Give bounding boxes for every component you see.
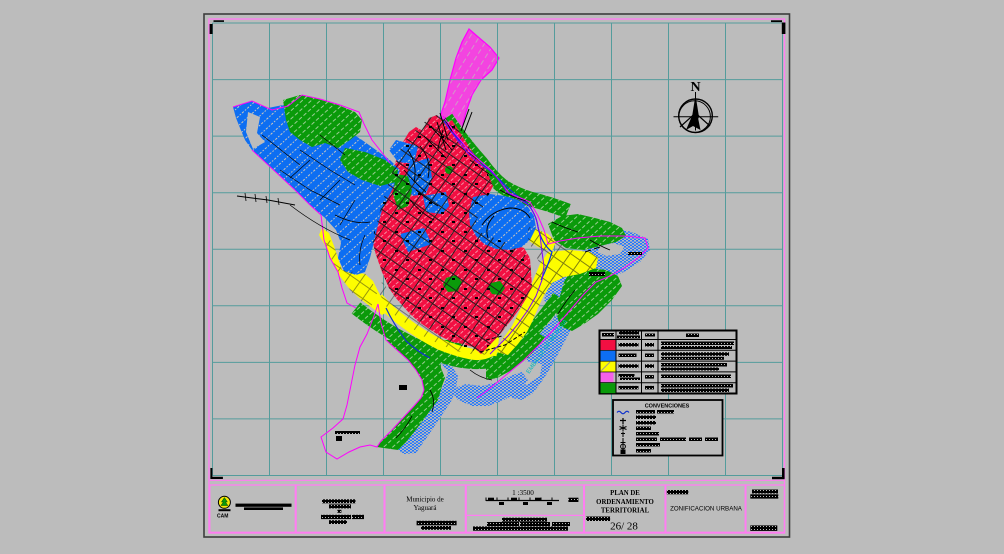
svg-text:PLAN DE: PLAN DE	[610, 490, 640, 497]
svg-text:CONVENCIONES: CONVENCIONES	[645, 404, 690, 410]
svg-text:ORDENAMIENTO: ORDENAMIENTO	[596, 499, 654, 506]
svg-text:26/ 28: 26/ 28	[610, 521, 638, 533]
svg-text:ZONIFICACION URBANA: ZONIFICACION URBANA	[670, 506, 743, 513]
svg-text:Yaguará: Yaguará	[413, 504, 437, 512]
svg-text:1 :3500: 1 :3500	[512, 489, 534, 497]
svg-text:TERRITORIAL: TERRITORIAL	[601, 508, 650, 515]
svg-text:Municipio de: Municipio de	[406, 496, 444, 504]
svg-text:CAM: CAM	[217, 514, 228, 520]
